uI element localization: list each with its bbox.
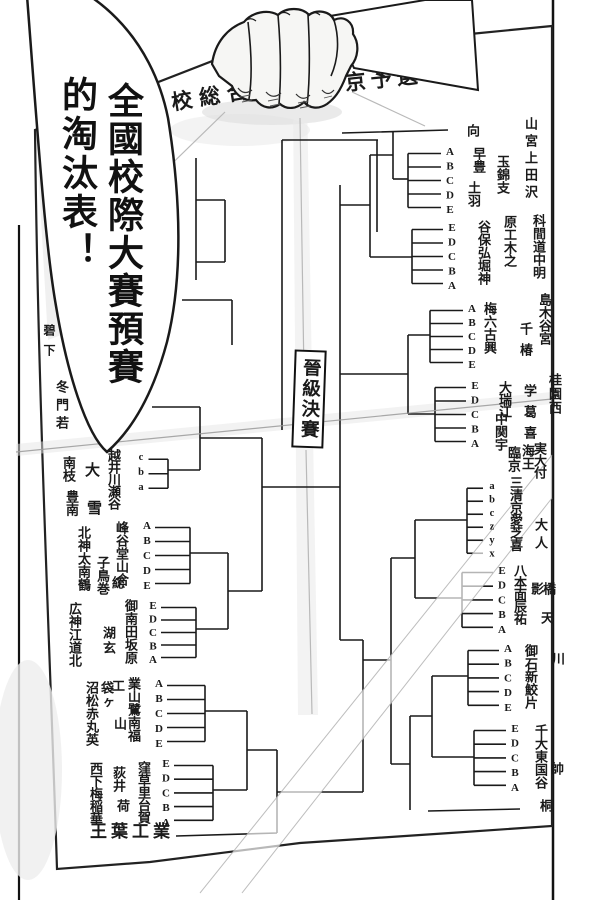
speech-bubble xyxy=(25,0,178,452)
overlay-art xyxy=(0,0,600,900)
manga-panel: 校総合 東京予選 晉級決賽 向早豊土羽玉錦支山宮上田沢谷保弘堀神原工木之科間道中… xyxy=(0,0,600,900)
fist-hand-icon xyxy=(212,9,357,108)
